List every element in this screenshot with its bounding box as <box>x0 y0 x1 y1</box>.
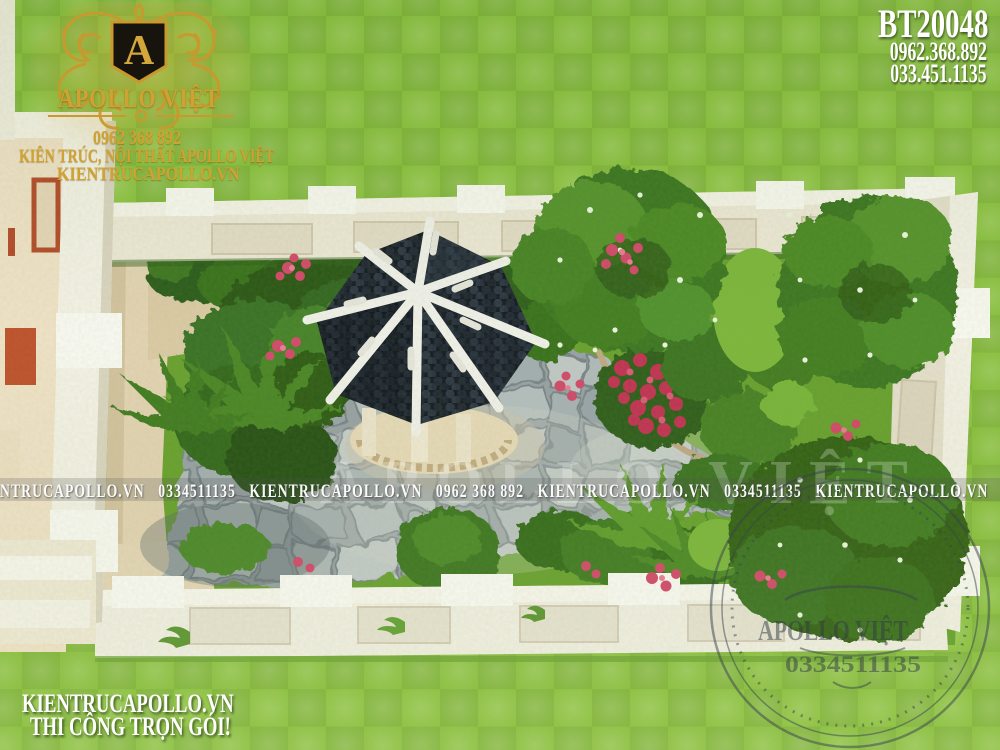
svg-text:A: A <box>124 28 155 74</box>
svg-text:APOLLO VIỆT: APOLLO VIỆT <box>758 614 908 647</box>
